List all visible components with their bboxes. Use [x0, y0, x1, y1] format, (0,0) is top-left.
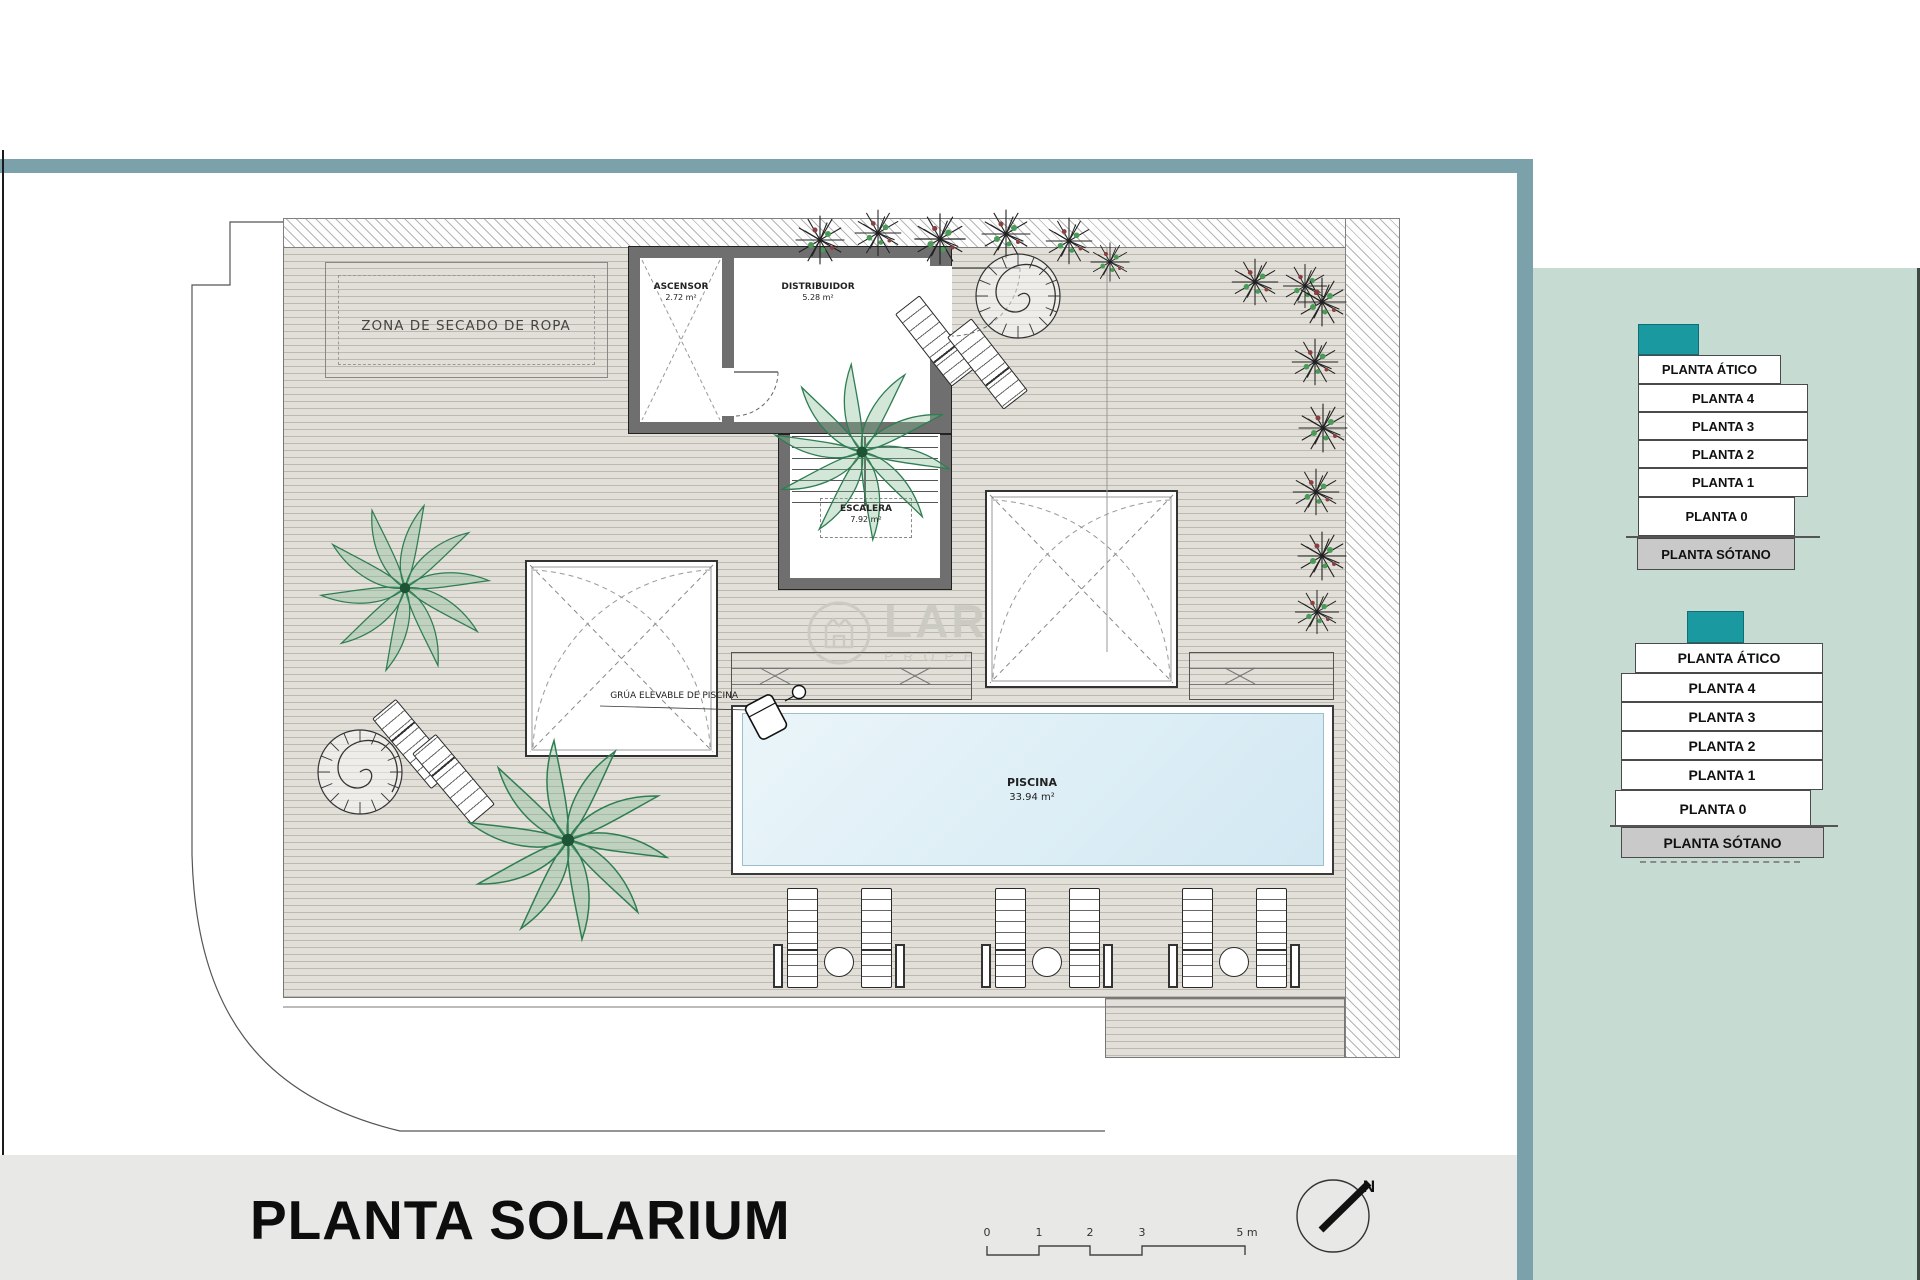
level-row-planta-1[interactable]: PLANTA 1 [1621, 760, 1823, 790]
elevator-label: ASCENSOR 2.72 m² [654, 282, 709, 305]
hall-area: 5.28 m² [802, 293, 833, 302]
level-row-planta-atico[interactable]: PLANTA ÁTICO [1638, 355, 1781, 384]
top-boundary-hatch [283, 218, 1400, 248]
level-row-planta-sotano[interactable]: PLANTA SÓTANO [1637, 538, 1795, 570]
level-row-planta-3[interactable]: PLANTA 3 [1621, 702, 1823, 731]
sun-lounger [1256, 888, 1287, 988]
planter-wall-tick [1168, 944, 1178, 988]
slat-band-left [731, 652, 972, 700]
side-table [824, 947, 854, 977]
level-row-planta-sotano[interactable]: PLANTA SÓTANO [1621, 827, 1824, 858]
pool-area: 33.94 m² [1009, 792, 1055, 803]
level-row-planta-atico[interactable]: PLANTA ÁTICO [1635, 643, 1823, 673]
side-accent-bar [1517, 159, 1533, 1280]
planter-wall-tick [1103, 944, 1113, 988]
level-row-planta-3[interactable]: PLANTA 3 [1638, 412, 1808, 440]
hall-label: DISTRIBUIDOR 5.28 m² [781, 282, 854, 305]
pool-label: PISCINA 33.94 m² [1007, 776, 1057, 804]
elevator-door-opening [722, 368, 734, 416]
sun-lounger [995, 888, 1026, 988]
level-row-planta-0[interactable]: PLANTA 0 [1615, 790, 1811, 827]
planter-wall-tick [1290, 944, 1300, 988]
level-row-planta-4[interactable]: PLANTA 4 [1621, 673, 1823, 702]
side-table [1219, 947, 1249, 977]
slat-band-right [1189, 652, 1334, 700]
stair-name: ESCALERA [840, 504, 892, 514]
elevator-name: ASCENSOR [654, 282, 709, 292]
skylight-marks [527, 562, 716, 755]
scale-tick-label: 3 [1139, 1226, 1146, 1240]
level-row-planta-2[interactable]: PLANTA 2 [1638, 440, 1808, 468]
stair-center-line [864, 436, 866, 506]
current-level-indicator[interactable] [1687, 611, 1744, 643]
scale-tick-label: 2 [1087, 1226, 1094, 1240]
level-row-planta-4[interactable]: PLANTA 4 [1638, 384, 1808, 412]
sheet-left-edge [2, 150, 4, 1155]
skylight-right [985, 490, 1178, 688]
deck-extension [1105, 998, 1345, 1058]
pool-name: PISCINA [1007, 776, 1057, 789]
level-row-planta-2[interactable]: PLANTA 2 [1621, 731, 1823, 760]
ground-dashed-line [1640, 861, 1800, 863]
stair-label: ESCALERA 7.92 m² [840, 504, 892, 527]
planter-wall-tick [773, 944, 783, 988]
page-title: PLANTA SOLARIUM [250, 1188, 791, 1252]
sun-lounger [1182, 888, 1213, 988]
side-table [1032, 947, 1062, 977]
level-row-planta-0[interactable]: PLANTA 0 [1638, 497, 1795, 536]
stair-area: 7.92 m² [850, 515, 881, 524]
drying-area-label: ZONA DE SECADO DE ROPA [361, 318, 571, 335]
level-row-planta-1[interactable]: PLANTA 1 [1638, 468, 1808, 497]
pool-crane-label: GRÚA ELEVABLE DE PISCINA [556, 691, 738, 701]
skylight-marks [987, 492, 1176, 686]
drawing-sheet: LARRO PROPERT [0, 0, 1920, 1280]
planter-wall-tick [895, 944, 905, 988]
current-level-indicator[interactable] [1638, 324, 1699, 355]
sun-lounger [787, 888, 818, 988]
skylight-left [525, 560, 718, 757]
scale-tick-label: 0 [984, 1226, 991, 1240]
sun-lounger [1069, 888, 1100, 988]
sun-lounger [861, 888, 892, 988]
scale-tick-label: 5 m [1236, 1226, 1257, 1240]
top-accent-bar [0, 159, 1533, 173]
hall-name: DISTRIBUIDOR [781, 282, 854, 292]
scale-tick-label: 1 [1036, 1226, 1043, 1240]
north-label: N [1363, 1176, 1375, 1197]
elevator-area: 2.72 m² [665, 293, 696, 302]
right-boundary-hatch [1345, 218, 1400, 1058]
planter-wall-tick [981, 944, 991, 988]
